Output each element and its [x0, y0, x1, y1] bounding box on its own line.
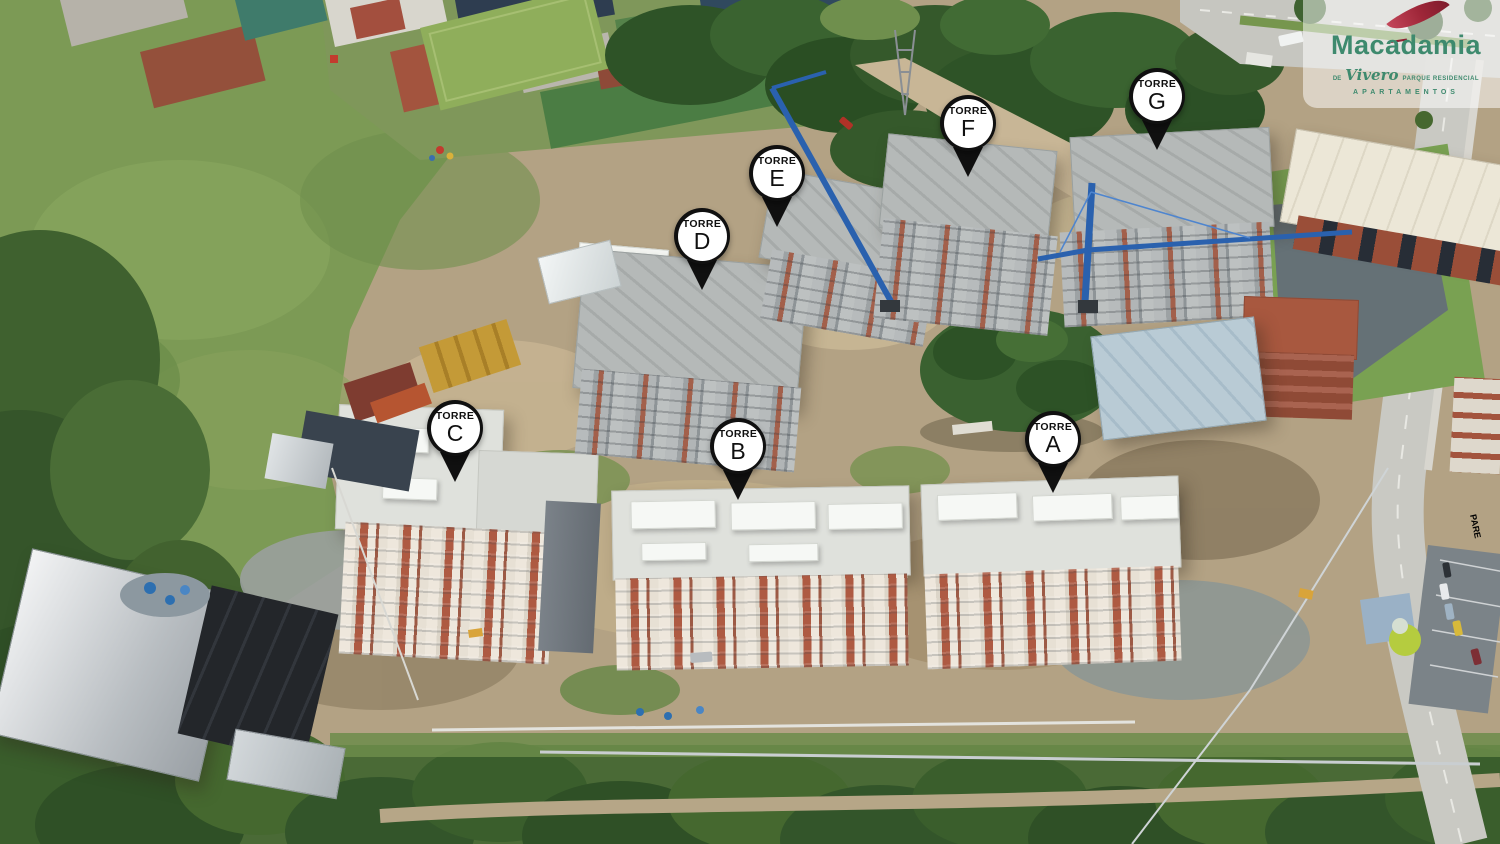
logo-subtitle: APARTAMENTOS	[1303, 89, 1500, 96]
marker-pointer	[723, 470, 753, 500]
marker-circle: TORRED	[674, 208, 730, 264]
marker-pointer	[1142, 120, 1172, 150]
marker-letter: B	[730, 440, 745, 463]
logo-subline: DE Vivero PARQUE RESIDENCIAL	[1303, 66, 1500, 84]
logo-macadamia: Macadamia DE Vivero PARQUE RESIDENCIAL A…	[1303, 0, 1500, 108]
logo-brand-text: Macadamia	[1303, 30, 1500, 61]
aerial-photo-construction-site: PARE TORREATORREBTORRECTORREDTORREETORRE…	[0, 0, 1500, 844]
marker-letter: A	[1045, 433, 1060, 456]
marker-circle: TORREB	[710, 418, 766, 474]
tower-markers-layer: TORREATORREBTORRECTORREDTORREETORREFTORR…	[0, 0, 1500, 844]
marker-circle: TORREF	[940, 95, 996, 151]
marker-pointer	[1038, 463, 1068, 493]
logo-tagline: PARQUE RESIDENCIAL	[1403, 76, 1480, 82]
marker-face: TORREE	[753, 149, 802, 198]
marker-letter: E	[769, 167, 784, 190]
marker-circle: TORREE	[749, 145, 805, 201]
marker-face: TORREA	[1029, 415, 1078, 464]
logo-de: DE	[1333, 76, 1341, 82]
logo-vivero: Vivero	[1345, 66, 1398, 84]
marker-face: TORREC	[431, 404, 480, 453]
marker-letter: F	[961, 117, 975, 140]
marker-face: TORREB	[714, 422, 763, 471]
marker-face: TORREG	[1133, 72, 1182, 121]
marker-letter: D	[694, 230, 711, 253]
marker-pointer	[687, 260, 717, 290]
marker-face: TORREF	[944, 99, 993, 148]
marker-pointer	[762, 197, 792, 227]
marker-letter: C	[447, 422, 464, 445]
marker-pointer	[953, 147, 983, 177]
marker-circle: TORREA	[1025, 411, 1081, 467]
marker-letter: G	[1148, 90, 1166, 113]
marker-pointer	[440, 452, 470, 482]
marker-face: TORRED	[678, 212, 727, 261]
marker-circle: TORREC	[427, 400, 483, 456]
marker-circle: TORREG	[1129, 68, 1185, 124]
